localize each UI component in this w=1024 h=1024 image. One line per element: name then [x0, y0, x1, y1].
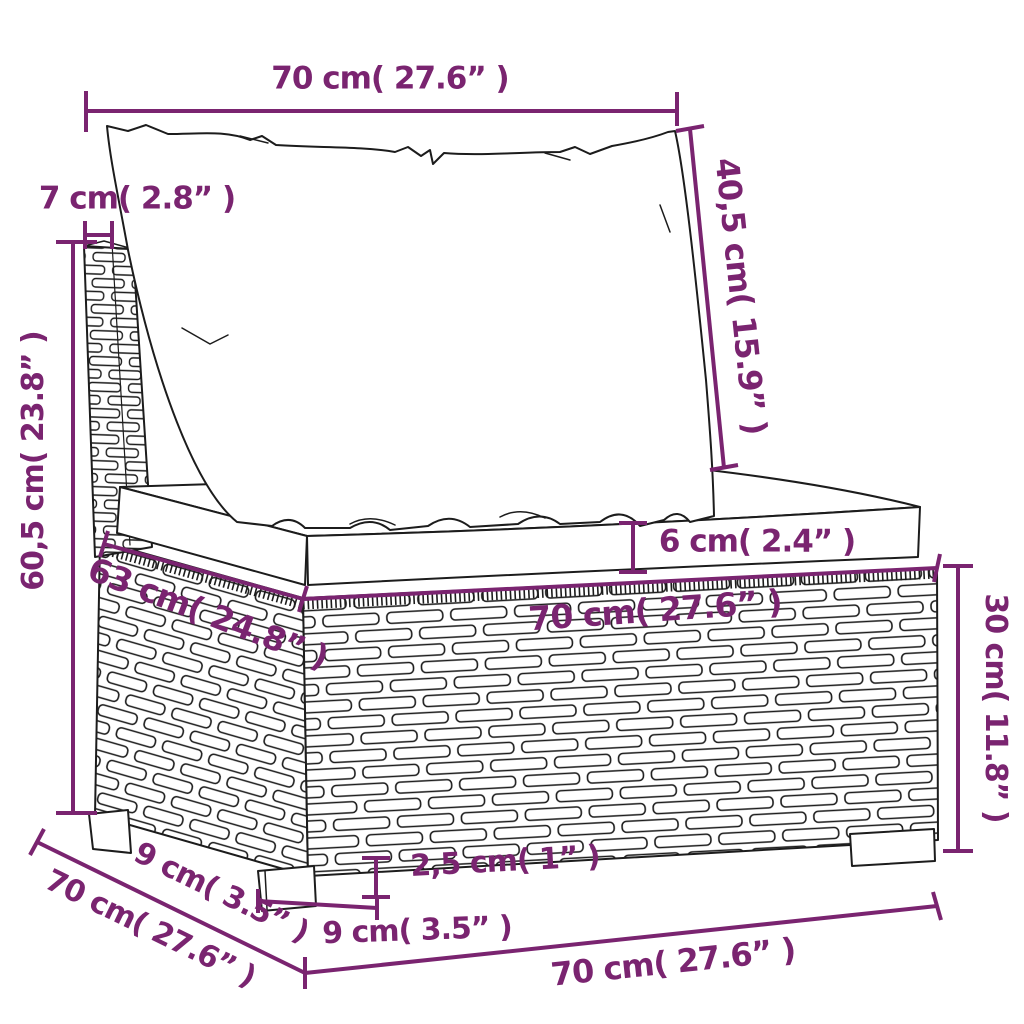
dim-label-top-width: 70 cm( 27.6” ) [271, 64, 508, 95]
dim-line-top-width [86, 91, 677, 132]
right-leg [850, 829, 935, 866]
dim-label-front-leg-width: 9 cm( 3.5” ) [322, 913, 512, 950]
dim-line-base-height [943, 566, 973, 851]
dim-label-total-height: 60,5 cm( 23.8” ) [19, 331, 49, 591]
dim-label-base-height: 30 cm( 11.8” ) [980, 593, 1010, 822]
dimension-diagram: 70 cm( 27.6” ) 7 cm( 2.8” ) 40,5 cm( 15.… [0, 0, 1024, 1024]
back-left-leg [89, 810, 131, 853]
dim-label-seat-cushion-thickness: 6 cm( 2.4” ) [659, 527, 855, 558]
dim-label-back-depth: 7 cm( 2.8” ) [39, 184, 235, 215]
